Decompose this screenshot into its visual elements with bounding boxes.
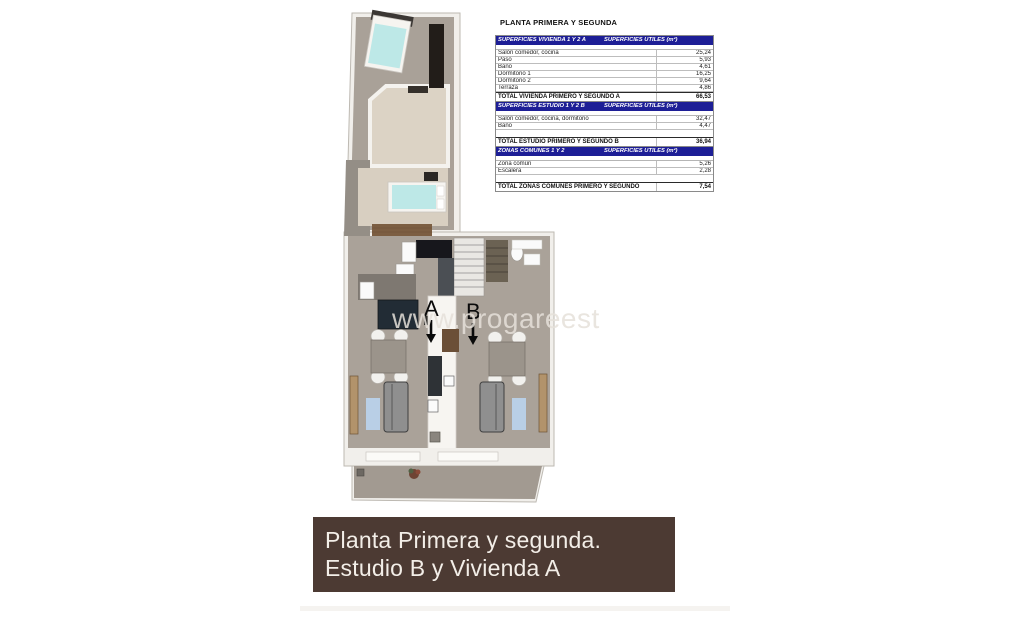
table-vivienda-a: SUPERFICIES VIVIENDA 1 Y 2 A SUPERFICIES… bbox=[495, 35, 714, 102]
caption-banner: Planta Primera y segunda. Estudio B y Vi… bbox=[313, 517, 675, 592]
wood-stairs bbox=[486, 240, 508, 282]
row-label: Salón comedor, cocina bbox=[496, 50, 657, 56]
total-label: TOTAL ESTUDIO PRIMERO Y SEGUNDO B bbox=[496, 138, 657, 146]
row-value: 4,86 bbox=[657, 85, 713, 91]
table-row: Dormitorio 2 9,64 bbox=[496, 78, 713, 85]
washbasin bbox=[402, 242, 416, 262]
table-zonas-comunes: ZONAS COMUNES 1 Y 2 SUPERFICIES UTILES (… bbox=[495, 146, 714, 192]
row-value: 25,24 bbox=[657, 50, 713, 56]
table-row: Baño 4,61 bbox=[496, 64, 713, 71]
kitchen-counter bbox=[428, 356, 442, 396]
row-value: 4,47 bbox=[657, 123, 713, 129]
rug-left bbox=[366, 398, 380, 430]
table-row: Salón comedor, cocina 25,24 bbox=[496, 50, 713, 57]
table-row: Paso 5,93 bbox=[496, 57, 713, 64]
total-value: 66,53 bbox=[657, 93, 713, 101]
door-left bbox=[350, 376, 358, 434]
row-label: Terraza bbox=[496, 85, 657, 91]
table-header: SUPERFICIES ESTUDIO 1 Y 2 B SUPERFICIES … bbox=[496, 102, 713, 111]
table-header: SUPERFICIES VIVIENDA 1 Y 2 A SUPERFICIES… bbox=[496, 36, 713, 45]
total-value: 7,54 bbox=[657, 183, 713, 191]
terrace-room bbox=[370, 86, 448, 166]
sink bbox=[444, 376, 454, 386]
caption-line-1: Planta Primera y segunda. bbox=[325, 526, 675, 554]
row-label: Dormitorio 1 bbox=[496, 71, 657, 77]
table-row: Baño 4,47 bbox=[496, 123, 713, 130]
row-label: Baño bbox=[496, 64, 657, 70]
rug-right bbox=[512, 398, 526, 430]
table-estudio-b: SUPERFICIES ESTUDIO 1 Y 2 B SUPERFICIES … bbox=[495, 101, 714, 147]
wood-balcony bbox=[372, 224, 432, 236]
row-value: 16,25 bbox=[657, 71, 713, 77]
table-header-units: SUPERFICIES UTILES (m²) bbox=[604, 147, 713, 156]
table-row: Salón comedor, cocina, dormitorio 32,47 bbox=[496, 116, 713, 123]
page-shadow bbox=[300, 606, 730, 611]
table-header-name: SUPERFICIES VIVIENDA 1 Y 2 A bbox=[496, 36, 604, 45]
row-value: 2,28 bbox=[657, 168, 713, 174]
table-total-row: TOTAL ZONAS COMUNES PRIMERO Y SEGUNDO 7,… bbox=[496, 182, 713, 191]
table-header-units: SUPERFICIES UTILES (m²) bbox=[604, 102, 713, 111]
table-header-units: SUPERFICIES UTILES (m²) bbox=[604, 36, 713, 45]
kitchen-unit bbox=[416, 240, 452, 258]
row-label: Dormitorio 2 bbox=[496, 78, 657, 84]
row-label: Salón comedor, cocina, dormitorio bbox=[496, 116, 657, 122]
door-right bbox=[539, 374, 547, 432]
row-label: Paso bbox=[496, 57, 657, 63]
table-row: Terraza 4,86 bbox=[496, 85, 713, 92]
row-value: 32,47 bbox=[657, 116, 713, 122]
caption-line-2: Estudio B y Vivienda A bbox=[325, 554, 675, 582]
middle-bedroom bbox=[358, 168, 448, 236]
total-value: 36,94 bbox=[657, 138, 713, 146]
shower bbox=[438, 258, 454, 296]
row-label: Zona común bbox=[496, 161, 657, 167]
tables-title: PLANTA PRIMERA Y SEGUNDA bbox=[500, 18, 617, 27]
window-sill-left bbox=[366, 452, 420, 461]
table-total-row: TOTAL ESTUDIO PRIMERO Y SEGUNDO B 36,94 bbox=[496, 137, 713, 146]
table-row: Zona común 5,26 bbox=[496, 161, 713, 168]
bed-double-middle bbox=[388, 182, 446, 212]
watermark-text: www.progareest bbox=[391, 303, 600, 334]
staircase bbox=[454, 238, 484, 296]
wardrobe bbox=[429, 24, 444, 88]
total-label: TOTAL ZONAS COMUNES PRIMERO Y SEGUNDO bbox=[496, 183, 657, 191]
table-header-name: ZONAS COMUNES 1 Y 2 bbox=[496, 147, 604, 156]
row-value: 5,93 bbox=[657, 57, 713, 63]
row-label: Escalera bbox=[496, 168, 657, 174]
row-value: 5,26 bbox=[657, 161, 713, 167]
row-label: Baño bbox=[496, 123, 657, 129]
row-value: 9,64 bbox=[657, 78, 713, 84]
table-header: ZONAS COMUNES 1 Y 2 SUPERFICIES UTILES (… bbox=[496, 147, 713, 156]
sofa-left bbox=[384, 382, 408, 432]
row-value: 4,61 bbox=[657, 64, 713, 70]
table-row: Dormitorio 1 16,25 bbox=[496, 71, 713, 78]
total-label: TOTAL VIVIENDA PRIMERO Y SEGUNDO A bbox=[496, 93, 657, 101]
bottom-terrace bbox=[354, 466, 542, 499]
bathtub bbox=[396, 264, 414, 275]
sofa-right bbox=[480, 382, 504, 432]
window-sill-right bbox=[438, 452, 498, 461]
tv-unit bbox=[424, 172, 438, 181]
table-row: Escalera 2,28 bbox=[496, 168, 713, 175]
table-total-row: TOTAL VIVIENDA PRIMERO Y SEGUNDO A 66,53 bbox=[496, 92, 713, 101]
page: A B www.progareest PLANTA PRIMERA Y SEGU… bbox=[0, 0, 1024, 640]
table-header-name: SUPERFICIES ESTUDIO 1 Y 2 B bbox=[496, 102, 604, 111]
